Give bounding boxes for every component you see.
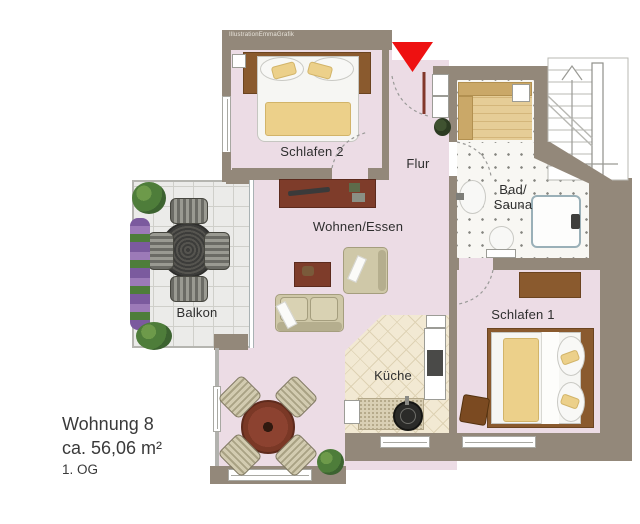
label-flur: Flur — [406, 156, 429, 171]
wardrobe-schlafen1 — [519, 272, 581, 298]
sauna-bench-left — [458, 96, 473, 140]
apartment-info: Wohnung 8 ca. 56,06 m² 1. OG — [62, 412, 162, 480]
wall-stairs-left — [534, 66, 548, 142]
bed2-side-table — [232, 54, 246, 68]
flur-plant — [434, 118, 451, 136]
label-kueche: Küche — [374, 368, 412, 383]
balcony-chair — [170, 198, 208, 224]
bed2-blanket — [265, 102, 351, 136]
wall-right — [600, 178, 632, 460]
apartment-area: ca. 56,06 m² — [62, 436, 162, 460]
bed1-duvet-fold — [541, 332, 559, 424]
plant — [317, 449, 344, 475]
sauna-heater — [512, 84, 530, 102]
label-schlafen1: Schlafen 1 — [491, 307, 554, 322]
kitchen-faucet — [405, 396, 409, 405]
label-bad-line1: Bad/ — [499, 182, 527, 197]
wall-flur-bad-lower — [449, 176, 457, 270]
balcony-door-divider — [249, 180, 254, 348]
sideboard-item — [349, 183, 360, 192]
bad-toilet-tank — [486, 249, 516, 258]
door-gap-schlafen1 — [459, 258, 493, 270]
balcony-plant — [136, 322, 172, 350]
kitchen-oven — [427, 350, 443, 376]
balcony-chair — [170, 276, 208, 302]
wall-balcony-post-bottom — [214, 334, 248, 350]
window-kueche — [380, 436, 430, 448]
flur-wardrobe-1 — [432, 74, 449, 96]
flur-wardrobe-2 — [432, 96, 449, 118]
label-schlafen2: Schlafen 2 — [280, 144, 343, 159]
label-bad-sauna: Bad/Sauna — [494, 182, 533, 212]
balcony-plant — [132, 182, 166, 214]
balcony-chair — [204, 232, 230, 270]
wall-schlafen2-flur-divider — [382, 50, 389, 168]
balcony-flower-box — [130, 218, 150, 330]
bad-toilet — [489, 226, 514, 251]
sideboard-item — [352, 193, 365, 202]
kitchen-cabinet-left — [344, 400, 360, 424]
kitchen-sink-basin — [400, 408, 416, 424]
nightstand — [459, 394, 490, 426]
label-balkon: Balkon — [177, 305, 218, 320]
shower-fixture — [571, 214, 580, 229]
label-bad-line2: Sauna — [494, 197, 533, 212]
apartment-name: Wohnung 8 — [62, 412, 162, 436]
coffee-table-item — [302, 266, 314, 276]
stair-up-arrow-icon — [562, 66, 582, 80]
wall-left-upper — [222, 50, 231, 96]
wall-bad-right — [589, 142, 600, 260]
bad-sink-faucet — [456, 193, 464, 200]
watermark: IllustrationEmmaGrafik — [229, 32, 294, 38]
floor-plan: Schlafen 2 Flur Bad/Sauna Wohnen/Essen B… — [0, 0, 640, 524]
wall-kueche-schlafen1-divider — [449, 270, 457, 435]
bed1-blanket — [503, 338, 539, 422]
kitchen-cabinet-top — [426, 315, 446, 328]
label-wohnen-essen: Wohnen/Essen — [313, 219, 403, 234]
balcony-chair — [148, 232, 174, 270]
sofa-cushion — [310, 297, 338, 321]
window-schlafen2 — [222, 96, 231, 154]
window-wohnen-left — [213, 386, 221, 432]
armchair-back — [378, 250, 386, 291]
apartment-floor: 1. OG — [62, 460, 162, 480]
window-schlafen1 — [462, 436, 536, 448]
